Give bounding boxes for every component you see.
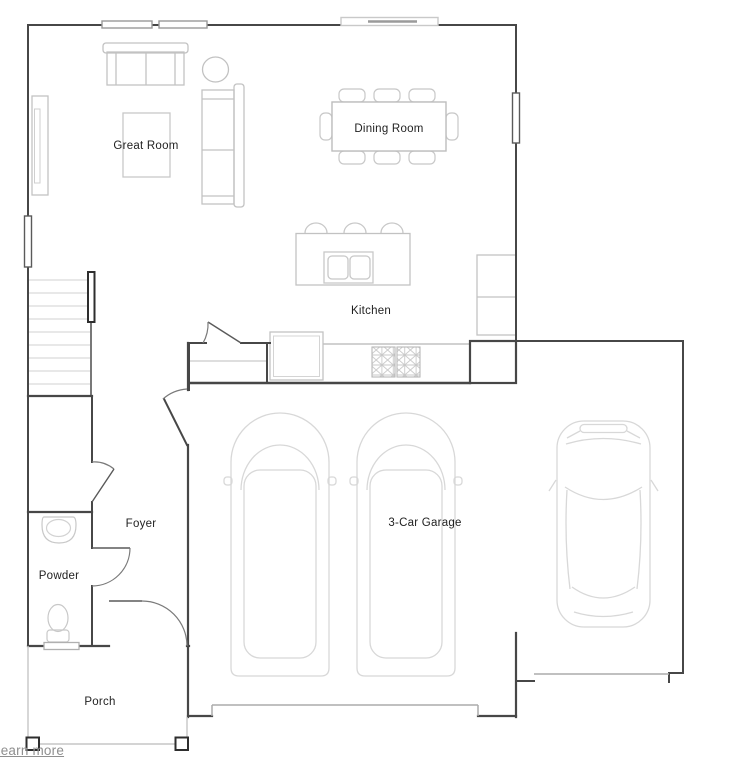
porch-outline [28,646,187,744]
island-stools [305,223,403,233]
window-right-wall [513,93,520,143]
window-top-1 [102,21,152,28]
garage-cars [224,413,658,676]
car-outline-2 [350,413,462,676]
cooktop-right [397,347,420,377]
dining-chair [339,151,365,164]
stair-newel-wall [88,272,95,322]
dining-chair [374,151,400,164]
car-outline-1 [224,413,336,676]
learn-more-link[interactable]: Learn more [0,743,64,758]
wall-cabinets [477,255,516,335]
wall-junction-box [470,341,516,383]
room-label-dining-room: Dining Room [354,123,423,135]
refrigerator [270,332,323,380]
sofa-cushion-lines [116,52,175,85]
dining-chair [409,151,435,164]
kitchen-entry-door [203,322,241,343]
round-side-table [203,57,229,82]
doors [92,322,241,646]
front-door [109,601,187,646]
kitchen-fixtures [189,223,516,380]
stair-treads [28,280,90,384]
garage-door-double [212,705,478,716]
toilet-bowl [48,605,68,632]
sectional-body [202,90,234,204]
car-top-view [549,421,658,627]
garage-entry-door-swing [163,389,187,399]
great-room-furniture [32,43,244,207]
fireplace-inner [35,109,41,183]
car-mirrors [549,480,658,491]
room-label-powder: Powder [39,570,80,582]
dining-chair [320,113,332,140]
floor-plan-page: { "page": { "background": "#ffffff" }, "… [0,0,755,764]
room-label-garage: 3-Car Garage [388,517,461,529]
porch-column [176,738,189,751]
wall-garage-right [669,341,683,682]
powder-window-sill [44,643,79,650]
kitchen-island [296,234,410,286]
room-label-kitchen: Kitchen [351,305,391,317]
room-labels: Great Room Dining Room Kitchen Foyer Pow… [39,123,462,708]
window-top-2 [159,21,207,28]
understair-closet-door [92,462,114,502]
room-label-foyer: Foyer [126,518,157,530]
cooktop-left [372,347,395,377]
room-label-porch: Porch [84,696,115,708]
sectional-back [234,84,244,207]
floor-plan-svg: Great Room Dining Room Kitchen Foyer Pow… [0,0,755,764]
room-label-great-room: Great Room [113,140,178,152]
dining-chair [374,89,400,102]
wall-foyer-angled [164,399,187,445]
window-left-wall [25,216,32,267]
dining-chair [339,89,365,102]
sink-bowl [47,520,71,537]
dining-chair [446,113,458,140]
dining-chair [409,89,435,102]
sectional-cushion-lines [202,99,234,196]
floor-plan: Great Room Dining Room Kitchen Foyer Pow… [0,0,755,764]
garage-doors [212,674,669,716]
stairs [28,272,95,396]
powder-door [92,548,130,586]
